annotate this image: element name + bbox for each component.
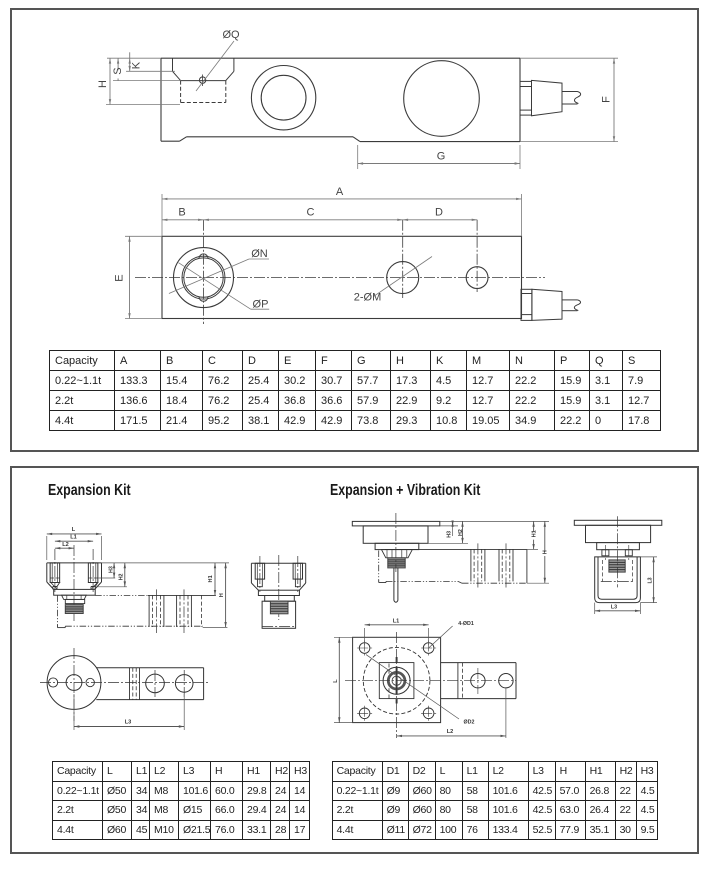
svg-text:L: L [333, 679, 339, 683]
svg-text:2-ØM: 2-ØM [354, 292, 382, 304]
svg-text:L: L [72, 527, 76, 533]
svg-text:L2: L2 [447, 729, 454, 735]
svg-text:L1: L1 [393, 618, 400, 624]
svg-text:H2: H2 [458, 529, 464, 536]
svg-text:L3: L3 [611, 605, 617, 611]
svg-text:H3: H3 [447, 531, 453, 538]
svg-text:L3: L3 [125, 720, 132, 726]
svg-text:H: H [97, 80, 109, 88]
svg-text:H3: H3 [108, 566, 114, 573]
svg-text:A: A [336, 186, 344, 198]
svg-text:ØD2: ØD2 [464, 720, 475, 726]
svg-text:D: D [435, 207, 443, 219]
svg-text:S: S [112, 67, 124, 74]
svg-text:G: G [437, 151, 446, 163]
svg-text:ØN: ØN [251, 248, 268, 260]
svg-text:H1: H1 [531, 530, 537, 537]
svg-text:H: H [219, 593, 225, 597]
svg-text:ØP: ØP [253, 299, 269, 311]
svg-text:E: E [114, 274, 126, 281]
svg-text:L1: L1 [70, 535, 77, 541]
svg-text:K: K [130, 61, 142, 69]
svg-text:H2: H2 [119, 573, 125, 580]
svg-text:B: B [178, 207, 185, 219]
svg-text:L3: L3 [647, 577, 653, 583]
svg-text:C: C [307, 207, 315, 219]
svg-text:L2: L2 [62, 542, 69, 548]
svg-text:H1: H1 [208, 575, 214, 582]
svg-text:H: H [543, 550, 549, 554]
svg-text:ØQ: ØQ [222, 29, 240, 41]
svg-text:4-ØD1: 4-ØD1 [458, 621, 474, 627]
svg-text:F: F [600, 96, 612, 103]
